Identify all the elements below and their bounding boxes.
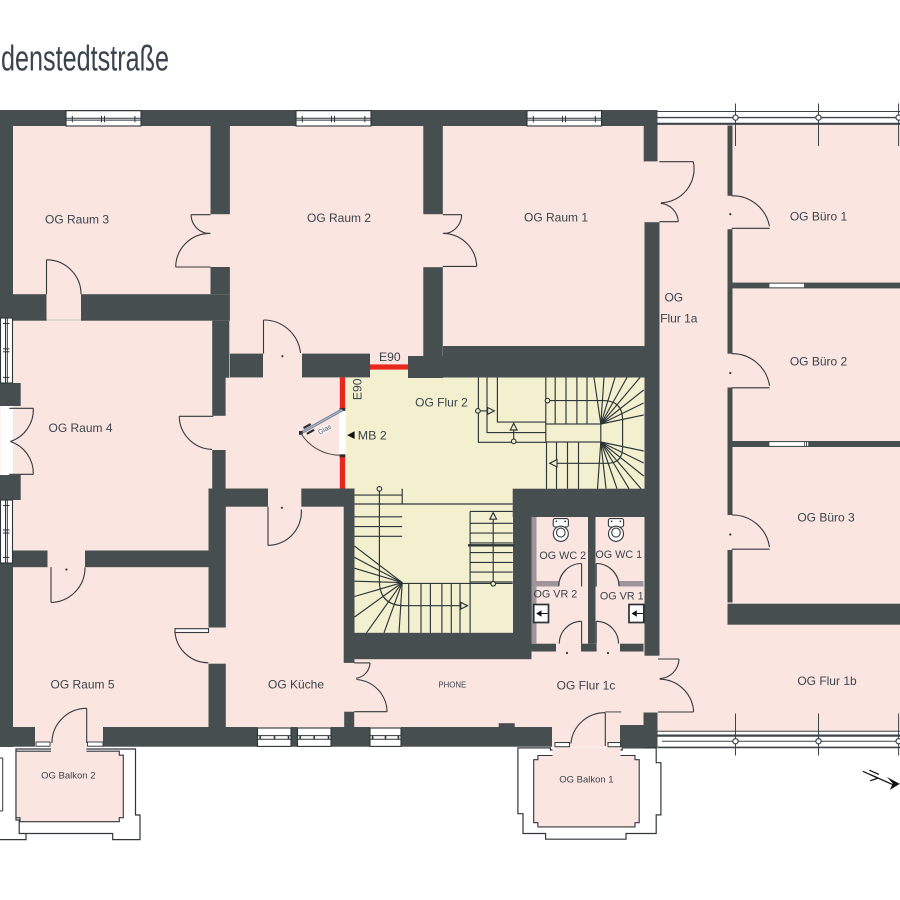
- svg-text:E90: E90: [379, 350, 401, 364]
- svg-text:OG Büro 1: OG Büro 1: [790, 210, 848, 224]
- svg-text:OG Balkon 2: OG Balkon 2: [41, 771, 95, 782]
- svg-text:OG Balkon 1: OG Balkon 1: [559, 774, 613, 785]
- svg-text:OG Raum 5: OG Raum 5: [50, 678, 114, 692]
- svg-text:OG VR 2: OG VR 2: [533, 588, 577, 600]
- svg-text:OG Raum 2: OG Raum 2: [307, 211, 371, 225]
- svg-text:OG Flur 1c: OG Flur 1c: [557, 679, 616, 693]
- svg-text:OG Flur 1b: OG Flur 1b: [797, 674, 857, 688]
- svg-text:OG WC 1: OG WC 1: [595, 549, 642, 561]
- svg-text:Flur 1a: Flur 1a: [660, 312, 698, 326]
- svg-text:denstedtstraße: denstedtstraße: [1, 38, 169, 79]
- svg-text:MB 2: MB 2: [358, 429, 387, 443]
- svg-text:OG Küche: OG Küche: [268, 678, 324, 692]
- svg-text:PHONE: PHONE: [438, 680, 466, 689]
- svg-text:OG Büro 3: OG Büro 3: [797, 511, 855, 525]
- svg-text:OG VR 1: OG VR 1: [600, 590, 644, 602]
- svg-text:OG: OG: [664, 291, 683, 305]
- svg-text:OG Raum 4: OG Raum 4: [48, 421, 112, 435]
- svg-text:E90: E90: [350, 378, 364, 400]
- svg-text:OG Raum 1: OG Raum 1: [524, 211, 588, 225]
- svg-text:OG Raum 3: OG Raum 3: [45, 213, 109, 227]
- svg-text:OG WC 2: OG WC 2: [539, 550, 586, 562]
- svg-text:OG Flur 2: OG Flur 2: [415, 396, 468, 410]
- svg-text:OG Büro 2: OG Büro 2: [790, 355, 848, 369]
